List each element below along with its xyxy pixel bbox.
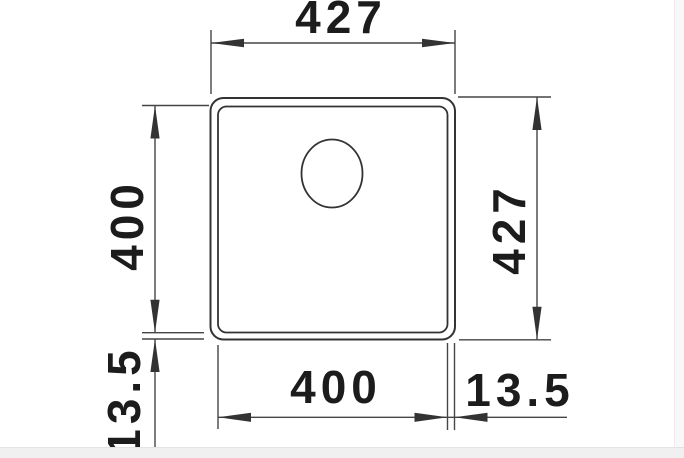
sink-outline xyxy=(211,98,456,340)
sink-dimension-drawing: 427 400 427 400 13.5 13.5 xyxy=(0,0,684,458)
bottom-margin-band xyxy=(0,447,684,458)
arrow-right-icon xyxy=(415,413,448,422)
dimension-label-rim-right: 13.5 xyxy=(440,367,600,413)
arrow-left-icon xyxy=(218,413,251,422)
arrow-down-icon xyxy=(532,307,541,340)
right-margin-band xyxy=(674,0,684,447)
dimension-label-left-height: 400 xyxy=(104,145,150,305)
arrow-right-icon xyxy=(422,39,455,48)
arrow-up-icon xyxy=(150,106,159,139)
arrow-down-icon xyxy=(150,300,159,333)
dimension-label-top-width: 427 xyxy=(261,0,421,40)
dimension-left-rim xyxy=(142,339,204,447)
dimension-label-rim-left: 13.5 xyxy=(101,320,147,458)
arrow-up-icon xyxy=(150,339,159,372)
sink-outer-rim xyxy=(211,98,456,340)
dimension-label-bottom-width: 400 xyxy=(256,364,416,410)
arrow-left-icon xyxy=(211,39,244,48)
dimension-label-right-height: 427 xyxy=(486,149,532,309)
drain-hole xyxy=(302,140,363,208)
arrow-up-icon xyxy=(532,97,541,130)
